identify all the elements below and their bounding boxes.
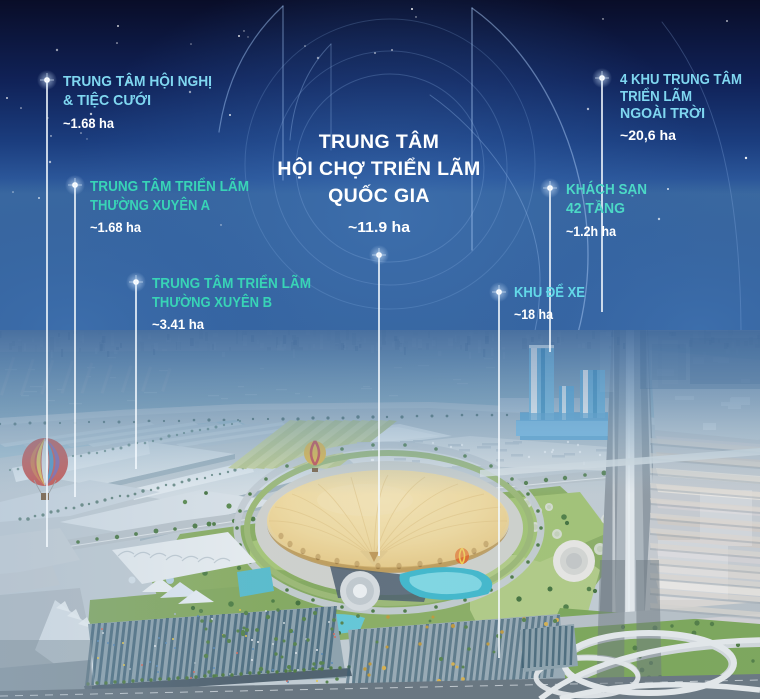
svg-text:4 KHU TRUNG TÂM: 4 KHU TRUNG TÂM — [620, 70, 742, 88]
svg-text:~1.68 ha: ~1.68 ha — [63, 116, 114, 131]
svg-text:~18 ha: ~18 ha — [514, 307, 553, 322]
svg-text:KHÁCH SẠN: KHÁCH SẠN — [566, 181, 647, 198]
svg-text:NGOÀI TRỜI: NGOÀI TRỜI — [620, 104, 705, 122]
svg-text:~1.2h ha: ~1.2h ha — [566, 224, 616, 239]
svg-text:TRUNG TÂM TRIỂN LÃM: TRUNG TÂM TRIỂN LÃM — [90, 177, 249, 195]
svg-text:TRUNG TÂM HỘI NGHỊ: TRUNG TÂM HỘI NGHỊ — [63, 72, 212, 90]
svg-text:~11.9 ha: ~11.9 ha — [348, 220, 411, 236]
svg-text:~1.68 ha: ~1.68 ha — [90, 220, 141, 235]
svg-text:& TIỆC CƯỚI: & TIỆC CƯỚI — [63, 91, 151, 109]
svg-text:HỘI CHỢ TRIỂN LÃM: HỘI CHỢ TRIỂN LÃM — [277, 156, 480, 180]
svg-text:TRIỂN LÃM: TRIỂN LÃM — [620, 87, 692, 105]
svg-text:TRUNG TÂM TRIỂN LÃM: TRUNG TÂM TRIỂN LÃM — [152, 274, 311, 292]
svg-text:THƯỜNG XUYÊN A: THƯỜNG XUYÊN A — [90, 196, 210, 214]
svg-text:TRUNG TÂM: TRUNG TÂM — [319, 129, 440, 153]
svg-text:42 TẦNG: 42 TẦNG — [566, 200, 625, 217]
svg-text:THƯỜNG XUYÊN B: THƯỜNG XUYÊN B — [152, 293, 272, 311]
svg-text:QUỐC GIA: QUỐC GIA — [328, 183, 430, 207]
svg-text:KHU ĐỂ XE: KHU ĐỂ XE — [514, 283, 585, 301]
svg-text:~3.41 ha: ~3.41 ha — [152, 317, 204, 332]
svg-text:~20,6 ha: ~20,6 ha — [620, 128, 677, 143]
